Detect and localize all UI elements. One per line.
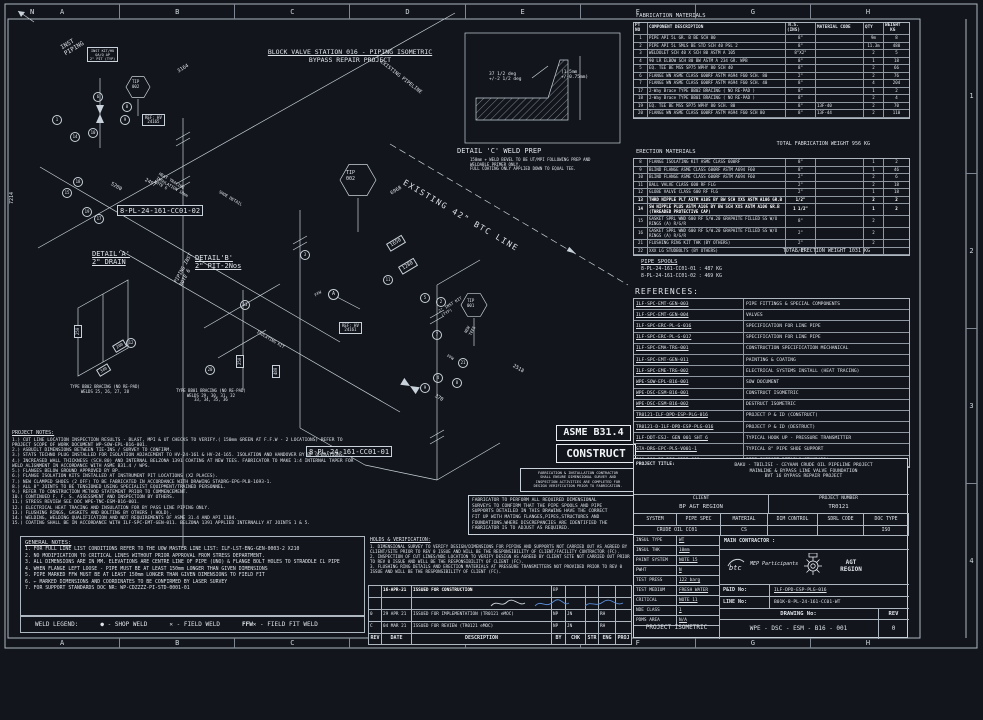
property-value: 122 barg	[677, 576, 719, 585]
reference-desc: DESTRUCT ISOMETRIC	[744, 400, 911, 410]
property-label: CRITICAL	[634, 596, 677, 605]
iso-label: TYPE BB01 BRACING (NO RE-PAD) WELDS 29, …	[176, 389, 246, 403]
line-no-value: B01K-8-PL-24-161-CC01-WT	[774, 600, 840, 606]
project-notes: PROJECT NOTES: 1.) CUT LINE LOCATION INS…	[12, 431, 364, 527]
iso-label: 150mm + WELD BEVEL TO BE UT/MPI FOLLOWIN…	[470, 158, 590, 172]
erection-row: 16GASKET SPRL WND 600 RF S/W.20 GRAPHITE…	[634, 228, 909, 240]
btc-logo: btc	[726, 556, 746, 572]
fabrication-note-small: FABRICATION & INSTALLATION CONTRACTOR SH…	[520, 468, 636, 492]
str-cell	[586, 586, 599, 597]
property-label: TEST PRESS	[634, 576, 677, 585]
weld-legend-text: - FIELD FIT WELD	[260, 621, 318, 628]
date-cell: 04 MAR 21	[382, 622, 412, 633]
references-title: REFERENCES:	[635, 287, 699, 296]
general-notes: GENERAL NOTES: 1. FOR FULL LINE LIST CON…	[20, 536, 365, 616]
holds-item: 1. DIMENSIONAL SURVEY TO VERIFY DESIGN/D…	[370, 544, 632, 554]
spec-header: DOC TYPE	[864, 514, 909, 525]
by-cell: NP	[552, 622, 566, 633]
weld-number: 8	[122, 102, 132, 112]
erection-row: 9BLIND FLANGE ASME CLASS 600RF ASTM A694…	[634, 167, 909, 175]
reference-doc: ILF-SPC-EME-TRG-002	[634, 366, 744, 376]
weld-number: 5	[420, 293, 430, 303]
property-label: PAINT SYSTEM	[634, 556, 677, 565]
property-row: TEST MEDIUM FRESH WATER	[634, 586, 719, 596]
iso-title-line1: BLOCK VALVE STATION 016 - PIPING ISOMETR…	[245, 48, 455, 56]
property-label: NDE CLASS	[634, 606, 677, 615]
iso-label: TIP 002	[346, 171, 355, 183]
iso-label: 7214	[10, 192, 16, 204]
weld-number: 20	[205, 365, 215, 375]
weld-legend-item: ● - SHOP WELD	[100, 621, 147, 628]
fabrication-materials-title: FABRICATION MATERIALS	[636, 13, 706, 19]
weld-number: 9	[420, 383, 430, 393]
line-properties: INSUL TYPE WT INSUL THK 10mm PAINT SYSTE…	[634, 536, 719, 626]
iso-label: DETAIL 'C' WELD PREP	[457, 147, 541, 155]
holds-item: 3. FLUSHING RING DETAILS AND ERECTION MA…	[370, 564, 632, 574]
weld-number: 2	[436, 297, 446, 307]
reference-desc: ELECTRICAL SYSTEMS INSTALL (HEAT TRACING…	[744, 366, 911, 376]
reference-doc: ILF-DDT-ESJ- GEN 001 SHT 6	[634, 433, 744, 443]
reference-row: WPE-DSC-ESM-B16-002 DESTRUCT ISOMETRIC	[634, 400, 909, 411]
property-value: 10mm	[677, 546, 719, 555]
reference-row: ILF-SPC-ERC-PL-G-016 SPECIFICATION FOR L…	[634, 321, 909, 332]
client-value: BP AGT REGION	[634, 504, 768, 511]
description-cell: ISSUED FOR REVIEW (TR0121 eMOC)	[412, 622, 552, 633]
fabrication-row: 5EQ. TEE BE MSS SP75 WPHY 80 SCH 40 8" 2…	[634, 65, 909, 73]
rev-cell: C	[369, 622, 382, 633]
weld-number: 21	[458, 358, 468, 368]
reference-doc: TR0121-ILF-DPD-ESP-PLG-016	[634, 411, 744, 421]
weld-number: 15	[62, 188, 72, 198]
pipe-spools: PIPE SPOOLS 8-PL-24-161-CC01-01 : 487 KG…	[641, 258, 722, 281]
reference-row: ILF-SPC-EMA-TRG-001 CONSTRUCTION SPECIFI…	[634, 344, 909, 355]
spec-header: SYSTEM	[634, 514, 677, 525]
fabrication-row: 6FLANGE WN ASME CLASS 600RF ASTM A694 F6…	[634, 73, 909, 81]
svg-text:btc: btc	[729, 564, 742, 572]
reference-desc: PROJECT P & ID (CONSTRUCT)	[744, 411, 911, 421]
property-value: FRESH WATER	[677, 586, 719, 595]
proj-cell	[616, 586, 631, 597]
property-value: 1	[677, 606, 719, 615]
main-contractor-label: MAIN CONTRACTOR :	[724, 538, 775, 544]
by-cell: NP	[552, 610, 566, 621]
iso-label: REF: HV 24165	[142, 114, 165, 126]
property-row: INSUL THK 10mm	[634, 546, 719, 556]
property-value: NOTE 15	[677, 556, 719, 565]
iso-label: DETAIL'A' 2" DRAIN	[92, 250, 130, 266]
pipe-spool-line: 8-PL-24-161-CC01-02 : 469 KG	[641, 273, 722, 280]
holds-item: 2. INSPECTION OF CUT LINES/NDE LOCATION …	[370, 554, 632, 564]
weld-number: 12	[126, 338, 136, 348]
line-no-label: LINE No:	[723, 599, 747, 605]
eng-cell	[599, 586, 616, 597]
reference-desc: TYPICAL HOOK UP - PRESSURE TRANSMITTER	[744, 433, 911, 443]
date-cell: 29 APR 21	[382, 610, 412, 621]
fabrication-row: 19EQ. TEE BE MSS SP75 WPHY 80 SCH. 80 8"…	[634, 103, 909, 111]
reference-doc: ILF-SPC-ERC-PL-G-017	[634, 333, 744, 343]
erection-row: 11BALL VALVE CLASS 600 RF FLG 2" 218	[634, 182, 909, 190]
reference-row: TR0121-ILF-DPD-ESP-PLG-016 PROJECT P & I…	[634, 411, 909, 422]
weld-number: 14	[70, 132, 80, 142]
weld-number: 18	[73, 177, 83, 187]
reference-doc: STA-DRG-EPC-PLS-V001-1	[634, 444, 744, 454]
project-note: 4.) INCREASED WALL THICKNESS (SCH.80) AN…	[12, 459, 364, 469]
project-note: 1.) CUT LINE LOCATION INSPECTION RESULTS…	[12, 438, 364, 448]
erection-total: TOTAL ERECTION WEIGHT 1031 KG	[783, 248, 870, 254]
grid-letter: C	[234, 638, 349, 648]
iso-label: 250	[236, 355, 244, 368]
iso-label: REF: HV 24161	[339, 322, 362, 334]
rev-value: 0	[878, 625, 909, 632]
reference-row: TR0121-D-ILF-DPD-ESP-PLG-016 PROJECT P &…	[634, 422, 909, 433]
property-label: PWHT	[634, 566, 677, 575]
project-title: BAKU - TBILISI - CEYHAN CRUDE OIL PIPELI…	[701, 463, 906, 480]
spec-header: MATERIAL	[721, 514, 768, 525]
agt-region-label: AGT REGION	[826, 559, 876, 573]
reference-doc: WPE-SOW-EPL-B16-001	[634, 377, 744, 387]
spec-header: PIPE SPEC	[677, 514, 721, 525]
description-cell: ISSUED FOR IMPLEMENTATION (TR0121 eMOC)	[412, 610, 552, 621]
weld-legend-text: - SHOP WELD	[108, 621, 148, 628]
reference-row: ILF-SPC-EMT-GEN-004 VALVES	[634, 310, 909, 321]
project-notes-title: PROJECT NOTES:	[12, 431, 364, 437]
references-table: ILF-SPC-EMT-GEN-003 PIPE FITTINGS & SPEC…	[633, 298, 910, 468]
weld-legend-label: WELD LEGEND:	[35, 621, 78, 628]
weld-symbol-icon: ●	[100, 621, 104, 628]
weld-legend: WELD LEGEND: ● - SHOP WELD✕ - FIELD WELD…	[20, 616, 365, 633]
iso-label: A	[328, 289, 339, 300]
weld-number: 8	[452, 378, 462, 388]
reference-row: ILF-SPC-EME-TRG-002 ELECTRICAL SYSTEMS I…	[634, 366, 909, 377]
reference-doc: WPE-DSC-ESM-B16-001	[634, 389, 744, 399]
reference-desc: TYPICAL 8" PIPE SHOE SUPPORT	[744, 444, 911, 454]
rev-cell	[369, 598, 382, 609]
reference-desc: CONSTRUCT ISOMETRIC	[744, 389, 911, 399]
reference-doc: WPE-DSC-ESM-B16-002	[634, 400, 744, 410]
reference-desc: SOW DOCUMENT	[744, 377, 911, 387]
iso-label: (1.5mm +/-0.75mm)	[561, 70, 588, 80]
erection-row: 10BLIND FLANGE ASME CLASS 600RF ASTM A69…	[634, 174, 909, 182]
reference-row: ILF-SPC-EMT-GEN-011 PAINTING & COATING	[634, 355, 909, 366]
project-number-label: PROJECT NUMBER	[768, 496, 909, 502]
drawing-sheet: ABCDEFGH ABCDEFGH 1234	[0, 0, 983, 720]
holds-verification: HOLDS & VERIFICATION: 1. DIMENSIONAL SUR…	[370, 538, 632, 574]
revision-header: REVDATE DESCRIPTIONBY CHKSTR ENGPROJ	[369, 634, 631, 644]
weld-number: 4	[433, 373, 443, 383]
grid-number: 3	[966, 328, 977, 483]
mep-participants-label: MEP Participants	[750, 561, 798, 567]
weld-number: 17	[94, 214, 104, 224]
fabrication-row: 7FLANGE WN ASME CLASS 600RF ASTM A694 F6…	[634, 80, 909, 88]
property-row: TEST PRESS 122 barg	[634, 576, 719, 586]
spec-values-row: CRUDE OIL CC01CSISO	[634, 526, 909, 535]
proj-cell	[616, 622, 631, 633]
rev-cell	[369, 586, 382, 597]
property-value: NOTE 11	[677, 596, 719, 605]
fabrication-row: 182-Way Brace TYPE BB01 BRACING ( NO RE-…	[634, 95, 909, 103]
spec-value: CRUDE OIL CC01	[634, 526, 721, 535]
property-row: CRITICAL NOTE 11	[634, 596, 719, 606]
property-value: N	[677, 566, 719, 575]
materials-header: PT NO COMPONENT DESCRIPTION N.S. (INS) M…	[634, 23, 909, 35]
reference-doc: ILF-SPC-EMT-GEN-003	[634, 299, 744, 309]
weld-number: 11	[383, 275, 393, 285]
weld-number: 9	[120, 115, 130, 125]
spec-value	[818, 526, 864, 535]
grid-number: 4	[966, 483, 977, 638]
fabrication-note-big: FABRICATOR TO PERFORM ALL REQUIRED DIMEN…	[468, 495, 636, 535]
client-label: CLIENT	[634, 496, 768, 502]
str-cell	[586, 610, 599, 621]
reference-row: ILF-DDT-ESJ- GEN 001 SHT 6 TYPICAL HOOK …	[634, 433, 909, 444]
iso-title-line2: BYPASS REPAIR PROJECT	[245, 56, 455, 64]
iso-label: 250	[74, 325, 82, 338]
iso-label: TIP 002	[132, 80, 139, 89]
right-column: FABRICATION MATERIALS PT NO COMPONENT DE…	[633, 0, 910, 720]
iso-label: TYPE BB02 BRACING (NO RE-PAD) WELDS 25, …	[70, 385, 140, 394]
reference-doc: TR0121-D-ILF-DPD-ESP-PLG-016	[634, 422, 744, 432]
spec-header-row: SYSTEMPIPE SPECMATERIALDIM CONTROLSDRL C…	[634, 514, 909, 525]
iso-label: DETAIL'B' 2" PIT-2Nos	[195, 254, 241, 270]
revision-row: C 04 MAR 21 ISSUED FOR REVIEW (TR0121 eM…	[369, 622, 631, 634]
construct-box: CONSTRUCT	[556, 444, 636, 463]
eng-cell: RH	[599, 622, 616, 633]
general-note: 7. FOR SUPPORT STANDARDS DOC NR: WP-CDZZ…	[25, 586, 360, 592]
asme-code-box: ASME B31.4	[556, 425, 631, 441]
reference-desc: PROJECT P & ID (DESTRUCT)	[744, 422, 911, 432]
erection-row: 12GLOBE VALVE CLASS 600 RF FLG 2" 118	[634, 189, 909, 197]
proj-cell	[616, 610, 631, 621]
property-row: NDE CLASS 1	[634, 606, 719, 616]
fabrication-row: 172-Way Brace TYPE BB02 BRACING ( NO RE-…	[634, 88, 909, 96]
iso-title: BLOCK VALVE STATION 016 - PIPING ISOMETR…	[245, 48, 455, 65]
reference-row: ILF-SPC-ERC-PL-G-017 SPECIFICATION FOR L…	[634, 333, 909, 344]
erection-materials-title: ERECTION MATERIALS	[636, 149, 696, 155]
pipe-spool-line: 8-PL-24-161-CC01-01 : 487 KG	[641, 266, 722, 273]
weld-symbol-icon: ✕	[169, 621, 173, 628]
project-note: 3.) STATS TECHNO PLUG INSTALLED FOR ISOL…	[12, 453, 364, 458]
project-isometric-label: PROJECT ISOMETRIC	[634, 624, 719, 631]
revision-table: 16-APR-21 ISSUED FOR CONSTRUCTION BP 0 2…	[368, 585, 632, 645]
fabrication-row: 490 LR ELBOW SCH 80 BW ASTM A 234 GR. WP…	[634, 58, 909, 66]
property-label: INSUL TYPE	[634, 536, 677, 545]
reference-doc: ILF-SPC-EMA-TRG-001	[634, 344, 744, 354]
description-cell: ISSUED FOR CONSTRUCTION	[412, 586, 552, 597]
pid-value: ILF-DPD-ESP-PLG-016	[774, 588, 827, 594]
spec-value	[768, 526, 818, 535]
property-value: WT	[677, 536, 719, 545]
iso-label: TIP 001	[467, 299, 474, 308]
rev-label: REV	[878, 611, 909, 618]
general-note: 3. ALL DIMENSIONS ARE IN MM. ELEVATIONS …	[25, 560, 360, 566]
iso-label: INST KIT/HU QA/Q AP 2" PIT (TYP)	[87, 47, 118, 62]
iso-label: 37 1/2 deg +/-2 1/2 deg	[489, 72, 522, 82]
spec-value: CS	[721, 526, 768, 535]
grid-number: 2	[966, 173, 977, 328]
spec-header: DIM CONTROL	[768, 514, 818, 525]
erection-row: 14SW NIPPLE PLUS ASTM A105 BY BW SCH XXS…	[634, 204, 909, 216]
reference-desc: PIPE FITTINGS & SPECIAL COMPONENTS	[744, 299, 911, 309]
pipe-spools-title: PIPE SPOOLS	[641, 258, 722, 266]
grid-numbers-right: 1234	[966, 19, 977, 638]
property-label: TEST MEDIUM	[634, 586, 677, 595]
weld-number: 7	[432, 330, 442, 340]
fabrication-row: 1PIPE API 5L GR. B BE SCH 80 8" 9m8	[634, 35, 909, 43]
weld-number: 19	[82, 207, 92, 217]
chk-cell	[566, 586, 586, 597]
erection-materials-table: 8FLANGE ISOLATING KIT ASME CLASS 600RF 8…	[633, 158, 910, 256]
reference-row: WPE-SOW-EPL-B16-001 SOW DOCUMENT	[634, 377, 909, 388]
revision-row: 0 29 APR 21 ISSUED FOR IMPLEMENTATION (T…	[369, 610, 631, 622]
reference-doc: ILF-SPC-ERC-PL-G-016	[634, 321, 744, 331]
grid-letter: B	[119, 638, 234, 648]
project-number-value: TR0121	[768, 504, 909, 511]
grid-number: 1	[966, 19, 977, 173]
weld-number: 6	[93, 92, 103, 102]
signatures	[489, 598, 631, 610]
reference-doc: ILF-SPC-EMT-GEN-011	[634, 355, 744, 365]
weld-legend-text: - FIELD WELD	[177, 621, 220, 628]
fabrication-total: TOTAL FABRICATION WEIGHT 956 KG	[777, 141, 870, 147]
spec-value: ISO	[864, 526, 909, 535]
reference-row: WPE-DSC-ESM-B16-001 CONSTRUCT ISOMETRIC	[634, 389, 909, 400]
erection-row: 13THRD NIPPLE PLT ASTM A105 BY BW SCH XX…	[634, 197, 909, 205]
by-cell: BP	[552, 586, 566, 597]
date-cell: 16-APR-21	[382, 586, 412, 597]
weld-number: 1	[52, 115, 62, 125]
grid-letter: A	[5, 638, 119, 648]
property-row: INSUL TYPE WT	[634, 536, 719, 546]
reference-doc: ILF-SPC-EMT-GEN-004	[634, 310, 744, 320]
drawing-no-label: DRAWING No:	[719, 611, 878, 618]
weld-legend-item: ✕ - FIELD WELD	[169, 621, 220, 628]
eng-cell: RH	[599, 610, 616, 621]
str-cell	[586, 622, 599, 633]
property-row: PWHT N	[634, 566, 719, 576]
pid-label: P&ID No:	[723, 587, 747, 593]
reference-desc: SPECIFICATION FOR LINE PIPE	[744, 333, 911, 343]
drawing-no-value: WPE - DSC - ESM - B16 - 001	[719, 625, 878, 632]
fabrication-row: 3WELDOLET SCH 40 X SCH 80 ASTM A 105 8"X…	[634, 50, 909, 58]
reference-desc: CONSTRUCTION SPECIFICATION MECHANICAL	[744, 344, 911, 354]
weld-number: 13	[240, 300, 250, 310]
weld-number: 10	[88, 128, 98, 138]
agt-gear-icon	[802, 553, 824, 577]
fabrication-materials-table: PT NO COMPONENT DESCRIPTION N.S. (INS) M…	[633, 22, 910, 119]
title-block: PROJECT TITLE: BAKU - TBILISI - CEYHAN C…	[633, 458, 908, 638]
rev-cell: 0	[369, 610, 382, 621]
reference-desc: SPECIFICATION FOR LINE PIPE	[744, 321, 911, 331]
reference-row: STA-DRG-EPC-PLS-V001-1 TYPICAL 8" PIPE S…	[634, 444, 909, 455]
weld-number: 3	[300, 250, 310, 260]
reference-row: ILF-SPC-EMT-GEN-003 PIPE FITTINGS & SPEC…	[634, 299, 909, 310]
revision-row: 16-APR-21 ISSUED FOR CONSTRUCTION BP	[369, 586, 631, 598]
project-note: 15.) COATING SHALL BE IN ACCORDANCE WITH…	[12, 521, 364, 526]
fabrication-row: 2PIPE API 5L SMLS BE STD SCH 40 PSL 2 8"…	[634, 43, 909, 51]
chk-cell: JN	[566, 610, 586, 621]
property-label: INSUL THK	[634, 546, 677, 555]
erection-row: 21FLUSHING RING KIT THK (BY OTHERS) 2" 2	[634, 240, 909, 248]
reference-desc: PAINTING & COATING	[744, 355, 911, 365]
weld-legend-item: FFW✕ - FIELD FIT WELD	[242, 621, 318, 628]
spec-header: SDRL CODE	[818, 514, 864, 525]
project-title-label: PROJECT TITLE:	[636, 462, 675, 468]
weld-symbol-icon: FFW✕	[242, 621, 256, 628]
erection-row: 8FLANGE ISOLATING KIT ASME CLASS 600RF 8…	[634, 159, 909, 167]
reference-desc: VALVES	[744, 310, 911, 320]
date-cell	[382, 598, 412, 609]
chk-cell: JN	[566, 622, 586, 633]
iso-label: 8-PL-24-161-CC01-02	[117, 205, 203, 216]
fabrication-row: 20FLANGE WN ASME CLASS 600RF ASTM A694 F…	[634, 110, 909, 118]
iso-label: 480	[272, 365, 280, 378]
erection-row: 15GASKET SPRL WND 600 RF S/W.20 GRAPHITE…	[634, 216, 909, 228]
iso-label: N	[30, 8, 34, 16]
property-row: PAINT SYSTEM NOTE 15	[634, 556, 719, 566]
